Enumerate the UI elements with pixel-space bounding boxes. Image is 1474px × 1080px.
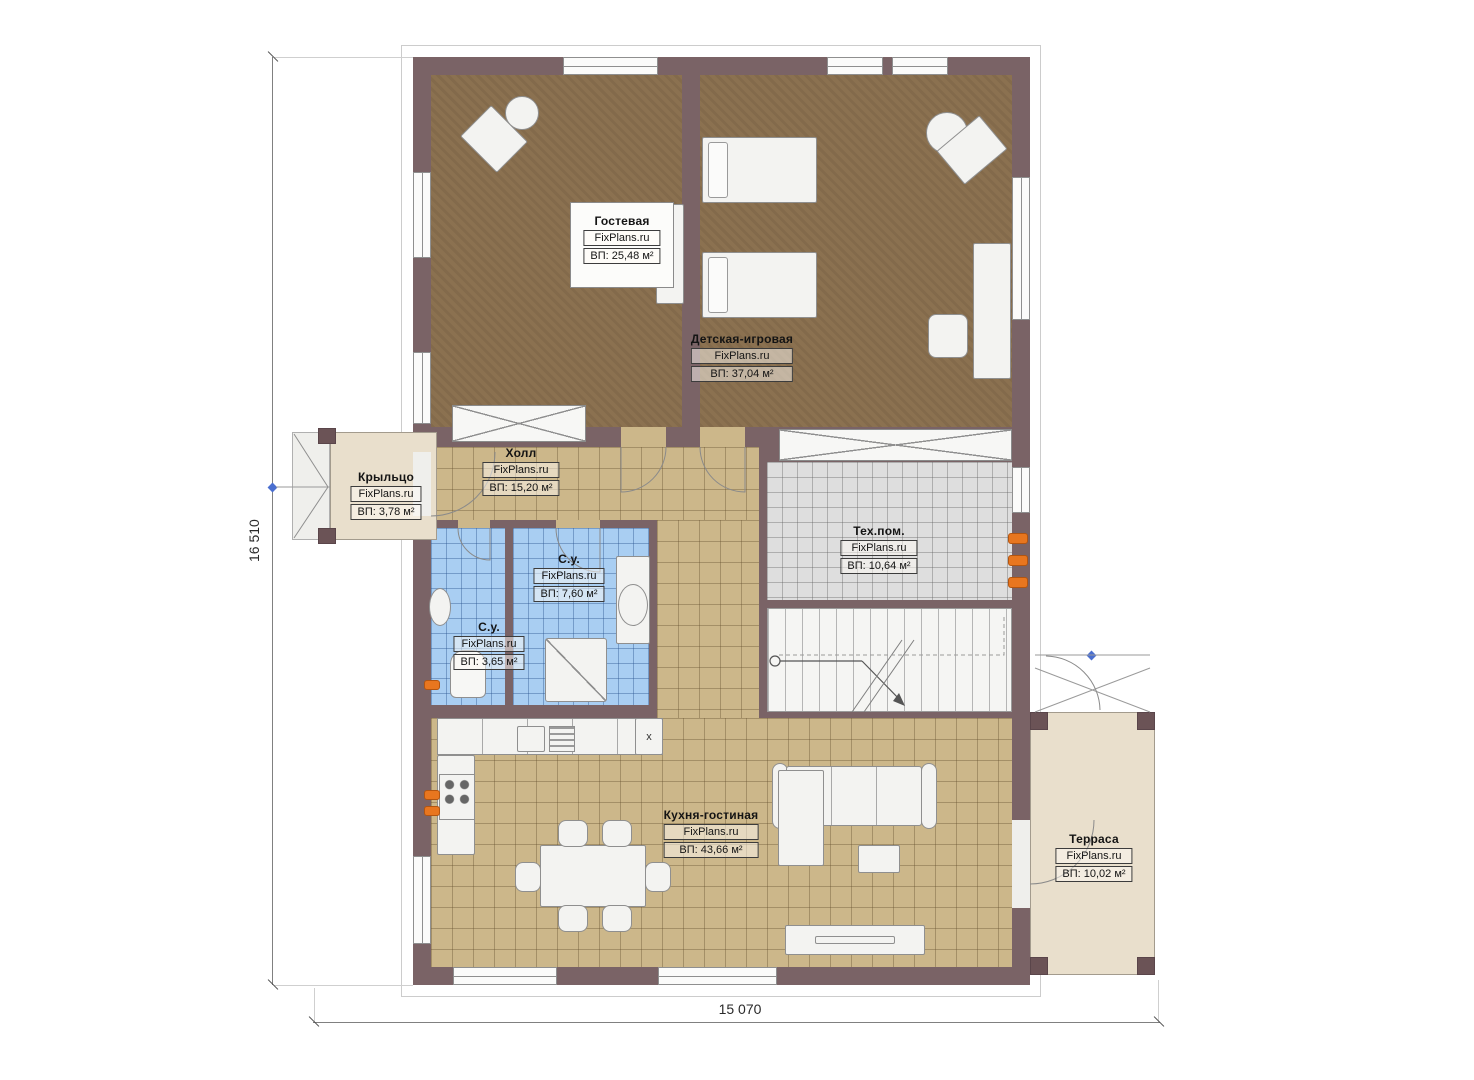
door-opening-guest bbox=[621, 427, 666, 447]
room-name: Детская-игровая bbox=[691, 332, 793, 346]
room-area: ВП: 43,66 м² bbox=[664, 842, 759, 858]
room-brand: FixPlans.ru bbox=[583, 230, 660, 246]
terrace-post bbox=[1137, 957, 1155, 975]
pillow-1 bbox=[708, 142, 728, 198]
sofa-chaise bbox=[778, 770, 824, 866]
room-brand: FixPlans.ru bbox=[691, 348, 793, 364]
radiator bbox=[1008, 577, 1028, 588]
wardrobe-hall-crossbox bbox=[452, 405, 586, 442]
door-arc-terrace-top bbox=[1046, 656, 1100, 710]
window-right-tech bbox=[1012, 467, 1030, 513]
room-label-guest: Гостевая FixPlans.ru ВП: 25,48 м² bbox=[583, 214, 660, 264]
door-opening-bathroom-large bbox=[556, 520, 600, 528]
desk-playroom-wall bbox=[973, 243, 1011, 379]
dining-chair bbox=[645, 862, 671, 892]
room-label-kitchen-living: Кухня-гостиная FixPlans.ru ВП: 43,66 м² bbox=[664, 808, 759, 858]
room-label-porch: Крыльцо FixPlans.ru ВП: 3,78 м² bbox=[350, 470, 421, 520]
sink-bathroom-small bbox=[429, 588, 451, 626]
window-left-kitchen bbox=[413, 856, 431, 944]
terrace-post bbox=[1030, 712, 1048, 730]
room-name: Холл bbox=[482, 446, 559, 460]
room-label-tech: Тех.пом. FixPlans.ru ВП: 10,64 м² bbox=[840, 524, 917, 574]
room-area: ВП: 10,02 м² bbox=[1055, 866, 1132, 882]
room-name: С.у. bbox=[533, 552, 604, 566]
terrace-post bbox=[1137, 712, 1155, 730]
extension-line bbox=[274, 985, 413, 986]
room-label-bathroom-large: С.у. FixPlans.ru ВП: 7,60 м² bbox=[533, 552, 604, 602]
terrace-top-glazing bbox=[1035, 655, 1150, 712]
room-area: ВП: 10,64 м² bbox=[840, 558, 917, 574]
kitchen-stove bbox=[439, 774, 475, 820]
kitchen-oven bbox=[549, 726, 575, 752]
floor-plan-canvas: x bbox=[0, 0, 1474, 1080]
radiator bbox=[424, 790, 440, 800]
dimension-line-left bbox=[272, 57, 273, 985]
room-area: ВП: 25,48 м² bbox=[583, 248, 660, 264]
room-area: ВП: 37,04 м² bbox=[691, 366, 793, 382]
room-label-bathroom-small: С.у. FixPlans.ru ВП: 3,65 м² bbox=[453, 620, 524, 670]
porch-post bbox=[318, 428, 336, 444]
room-brand: FixPlans.ru bbox=[350, 486, 421, 502]
room-name: Крыльцо bbox=[350, 470, 421, 484]
window-top-playroom-1 bbox=[827, 57, 883, 75]
room-label-playroom: Детская-игровая FixPlans.ru ВП: 37,04 м² bbox=[691, 332, 793, 382]
window-left-guest-2 bbox=[413, 352, 431, 424]
sink-bathroom-large bbox=[618, 584, 648, 626]
room-brand: FixPlans.ru bbox=[840, 540, 917, 556]
extension-line bbox=[274, 57, 413, 58]
radiator bbox=[424, 680, 440, 690]
radiator bbox=[1008, 533, 1028, 544]
room-area: ВП: 3,65 м² bbox=[453, 654, 524, 670]
appliance-mark: x bbox=[646, 731, 652, 743]
dining-chair bbox=[558, 905, 588, 932]
window-right-playroom bbox=[1012, 177, 1030, 320]
room-name: Тех.пом. bbox=[840, 524, 917, 538]
door-opening-playroom bbox=[700, 427, 745, 447]
staircase bbox=[767, 608, 1012, 712]
radiator bbox=[424, 806, 440, 816]
dining-chair bbox=[558, 820, 588, 847]
shower-bathroom-large bbox=[545, 638, 607, 702]
dining-chair bbox=[602, 820, 632, 847]
door-opening-terrace bbox=[1012, 820, 1030, 908]
porch-steps bbox=[292, 432, 330, 540]
radiator bbox=[1008, 555, 1028, 566]
room-name: С.у. bbox=[453, 620, 524, 634]
room-area: ВП: 15,20 м² bbox=[482, 480, 559, 496]
room-label-hall: Холл FixPlans.ru ВП: 15,20 м² bbox=[482, 446, 559, 496]
room-floor-hall bbox=[431, 447, 759, 520]
terrace-post bbox=[1030, 957, 1048, 975]
chair-playroom-desk bbox=[928, 314, 968, 358]
window-bottom-living bbox=[658, 967, 777, 985]
window-top-playroom-2 bbox=[892, 57, 948, 75]
room-brand: FixPlans.ru bbox=[453, 636, 524, 652]
sofa-arm-right bbox=[921, 763, 937, 829]
chair-guest bbox=[505, 96, 539, 130]
window-bottom-kitchen bbox=[453, 967, 557, 985]
extension-line bbox=[1158, 980, 1159, 1022]
room-name: Кухня-гостиная bbox=[664, 808, 759, 822]
window-top-guest bbox=[563, 57, 658, 75]
room-name: Терраса bbox=[1055, 832, 1132, 846]
room-brand: FixPlans.ru bbox=[482, 462, 559, 478]
dining-table bbox=[540, 845, 646, 907]
room-area: ВП: 3,78 м² bbox=[350, 504, 421, 520]
porch-post bbox=[318, 528, 336, 544]
door-opening-bathroom-small bbox=[458, 520, 490, 528]
wardrobe-tech-crossbox bbox=[779, 429, 1012, 461]
room-area: ВП: 7,60 м² bbox=[533, 586, 604, 602]
room-brand: FixPlans.ru bbox=[1055, 848, 1132, 864]
room-floor-hall-corridor bbox=[657, 520, 759, 718]
dimension-line-bottom bbox=[313, 1022, 1160, 1023]
dining-chair bbox=[602, 905, 632, 932]
window-left-guest-1 bbox=[413, 172, 431, 258]
tv bbox=[815, 936, 895, 944]
dimension-label-left: 16 510 bbox=[246, 519, 262, 562]
room-brand: FixPlans.ru bbox=[664, 824, 759, 840]
extension-line bbox=[314, 988, 315, 1022]
dining-chair bbox=[515, 862, 541, 892]
pillow-2 bbox=[708, 257, 728, 313]
room-name: Гостевая bbox=[583, 214, 660, 228]
coffee-table bbox=[858, 845, 900, 873]
kitchen-appliance-x: x bbox=[635, 718, 663, 755]
dimension-label-bottom: 15 070 bbox=[690, 1001, 790, 1017]
dimension-marker bbox=[268, 483, 278, 493]
room-label-terrace: Терраса FixPlans.ru ВП: 10,02 м² bbox=[1055, 832, 1132, 882]
kitchen-sink bbox=[517, 726, 545, 752]
room-brand: FixPlans.ru bbox=[533, 568, 604, 584]
dimension-marker bbox=[1087, 651, 1097, 661]
